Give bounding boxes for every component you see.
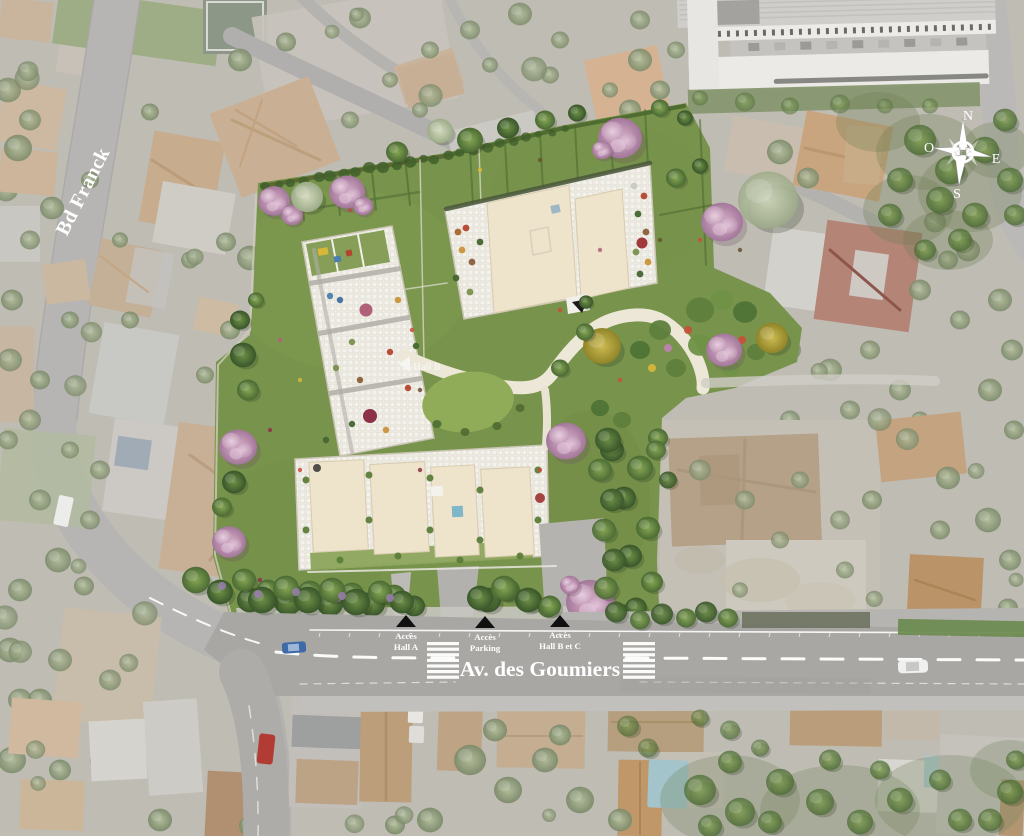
svg-text:O: O xyxy=(924,141,934,156)
svg-text:Hall A: Hall A xyxy=(394,642,419,652)
svg-text:N: N xyxy=(963,109,973,124)
svg-text:Parking: Parking xyxy=(470,643,501,653)
svg-text:Hall B et C: Hall B et C xyxy=(539,641,581,651)
svg-text:Hall B: Hall B xyxy=(413,362,441,373)
svg-text:S: S xyxy=(953,187,961,202)
svg-text:Accès: Accès xyxy=(474,632,496,642)
svg-text:Accès: Accès xyxy=(549,630,571,640)
svg-text:Accès: Accès xyxy=(395,631,417,641)
svg-text:Av. des Goumiers: Av. des Goumiers xyxy=(460,657,620,681)
svg-text:E: E xyxy=(992,152,1001,167)
